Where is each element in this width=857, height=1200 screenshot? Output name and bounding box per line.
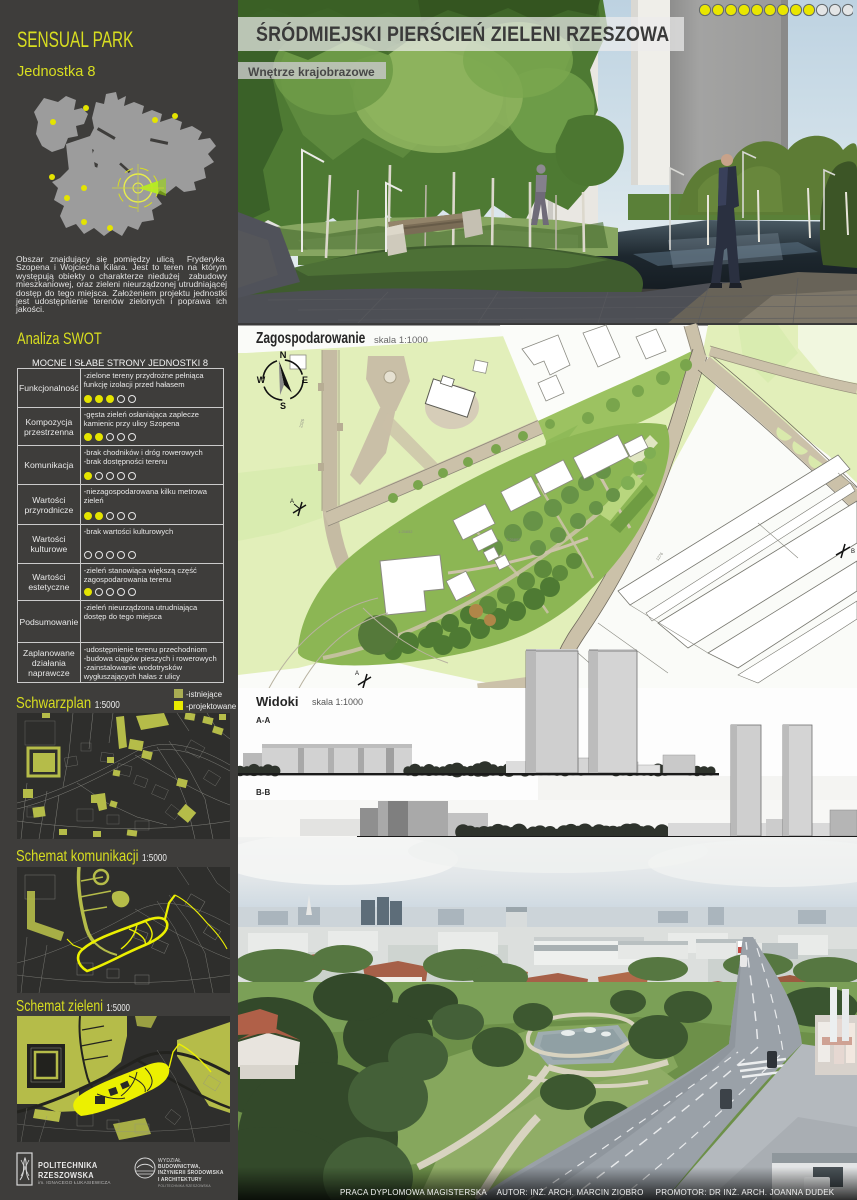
svg-text:S: S [280,401,286,411]
svg-text:1:25852: 1:25852 [398,529,413,534]
svg-text:N: N [280,350,287,361]
svg-text:A: A [290,499,294,505]
svg-text:B: B [851,549,855,555]
svg-text:W: W [257,375,266,385]
svg-text:1:25802: 1:25802 [506,537,521,542]
svg-text:E: E [302,375,308,385]
